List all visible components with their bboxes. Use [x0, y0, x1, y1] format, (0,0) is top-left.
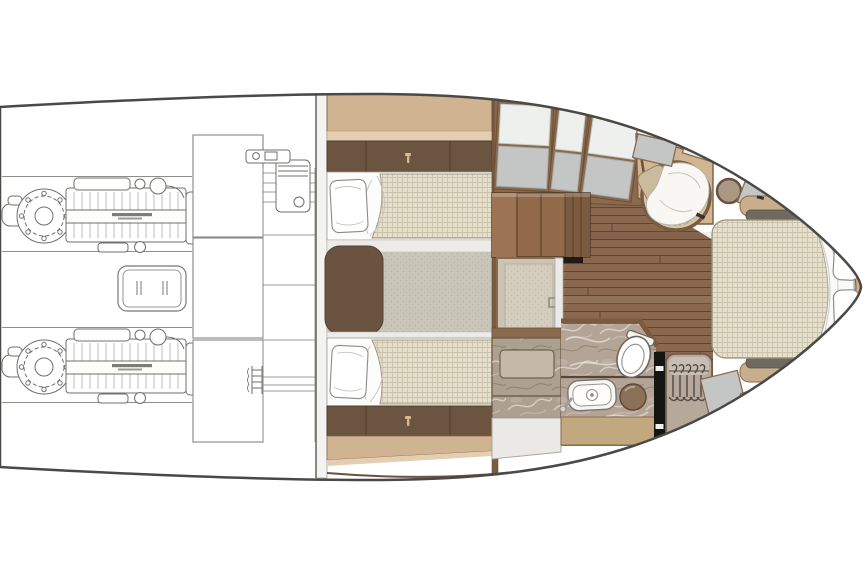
drawer-band-top — [327, 141, 492, 172]
nightstand — [325, 246, 383, 334]
twin-bed-starboard — [327, 338, 492, 406]
bathroom — [492, 321, 657, 459]
mirror-door — [654, 352, 665, 444]
pillow-icon — [330, 345, 369, 399]
drawer-band-bottom — [327, 406, 492, 436]
floor-plan-canvas: Motor yacht lower-deck interior floor pl… — [0, 0, 864, 576]
vanity-cabinet — [561, 417, 656, 445]
cabin-vestibule — [497, 258, 563, 334]
yacht-deck-plan — [0, 0, 864, 576]
washbasin-icon — [567, 379, 617, 411]
side-table — [717, 179, 741, 203]
generator-icon — [118, 266, 186, 311]
pillow-icon — [330, 179, 369, 233]
twin-guest-cabin — [325, 92, 492, 466]
shower-floor — [492, 418, 561, 459]
bed-step — [327, 332, 492, 338]
locker-unit — [493, 101, 554, 192]
hanging-wardrobe — [660, 354, 712, 460]
master-bed — [712, 220, 861, 358]
upper-locker-shelf — [327, 131, 492, 141]
bathroom-stool — [620, 384, 646, 410]
companionway-stairs — [492, 193, 590, 263]
pillow-icon — [833, 229, 862, 280]
twin-bed-port — [327, 172, 492, 240]
stair-step-shadow — [563, 257, 583, 263]
shower — [492, 328, 561, 459]
shower-tray — [500, 350, 554, 378]
fuel-tanks — [193, 135, 263, 442]
